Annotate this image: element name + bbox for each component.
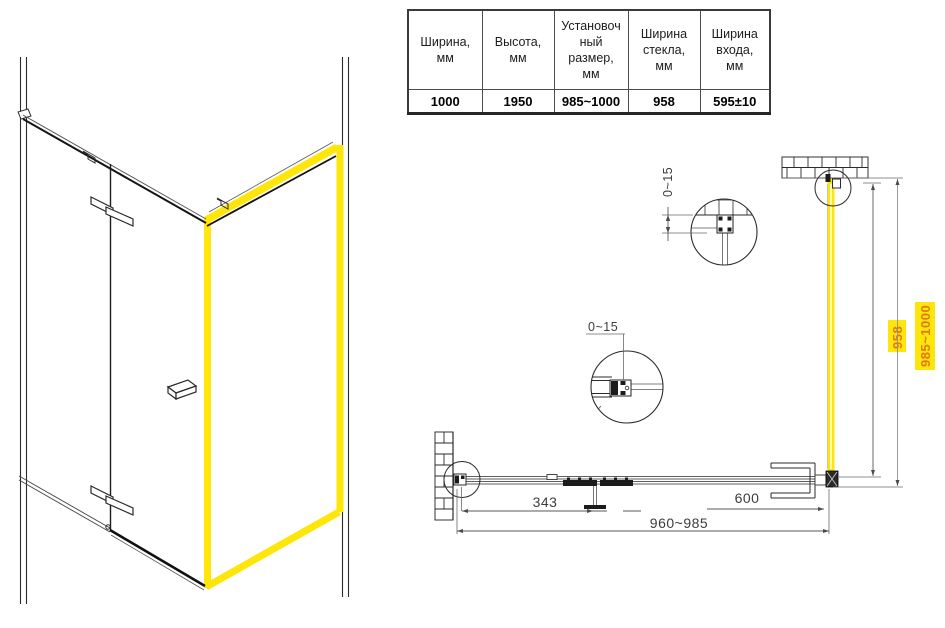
dim-mid-adjust: 0~15 [586, 320, 625, 380]
left-wall-edge [21, 57, 27, 604]
door-handle [771, 463, 826, 498]
spec-value-glass: 958 [628, 90, 700, 114]
spec-header-install: Установоч ный размер, мм [554, 10, 628, 90]
bottom-rail [19, 476, 205, 590]
spec-value-height: 1950 [482, 90, 554, 114]
dim-top-adjust: 0~15 [661, 167, 707, 241]
detail-circle-mid-enlarged: 0~15 [586, 320, 663, 423]
spec-header-glass: Ширина стекла, мм [628, 10, 700, 90]
spec-header-width: Ширина, мм [408, 10, 482, 90]
dim-glass-width: 958 [838, 183, 906, 477]
highlighted-frame [204, 144, 344, 590]
corner-joint [826, 471, 838, 487]
dim-top-adjust-label: 0~15 [661, 167, 675, 197]
roller-bracket [584, 486, 606, 509]
hinge-top [91, 197, 133, 226]
spec-header-entry: Ширина входа, мм [700, 10, 770, 90]
glass-panel-strip [828, 179, 835, 471]
spec-table: Ширина, мм Высота, мм Установоч ный разм… [407, 9, 771, 115]
spec-table-header-row: Ширина, мм Высота, мм Установоч ный разм… [408, 10, 770, 90]
top-rail [18, 109, 206, 223]
spec-header-height: Высота, мм [482, 10, 554, 90]
door-stopper [547, 475, 557, 480]
dim-total-width-label: 960~985 [650, 515, 708, 531]
plan-view: 0~15 0~15 [435, 157, 935, 534]
spec-value-entry: 595±10 [700, 90, 770, 114]
brick-wall-top [782, 157, 903, 178]
dim-install-width: 985~1000 [833, 179, 935, 487]
shower-enclosure-drawing: 0~15 0~15 [0, 0, 945, 628]
bottom-rail-assembly [453, 475, 833, 510]
spec-value-width: 1000 [408, 90, 482, 114]
dim-install-width-label: 985~1000 [918, 305, 933, 367]
detail-circle-top-enlarged: 0~15 [661, 167, 758, 266]
hinge-bottom [91, 486, 133, 515]
dim-total-width: 960~985 [457, 489, 829, 534]
door-seal-left [563, 478, 597, 487]
spec-value-install: 985~1000 [554, 90, 628, 114]
iso-view [18, 57, 349, 604]
dim-door-offset: 343 [462, 487, 642, 513]
dim-door-offset-label: 343 [533, 494, 558, 510]
dim-entry-width-label: 600 [735, 490, 760, 506]
spec-table-value-row: 1000 1950 985~1000 958 595±10 [408, 90, 770, 114]
door-knob [168, 380, 196, 399]
dim-mid-adjust-label: 0~15 [588, 320, 618, 334]
